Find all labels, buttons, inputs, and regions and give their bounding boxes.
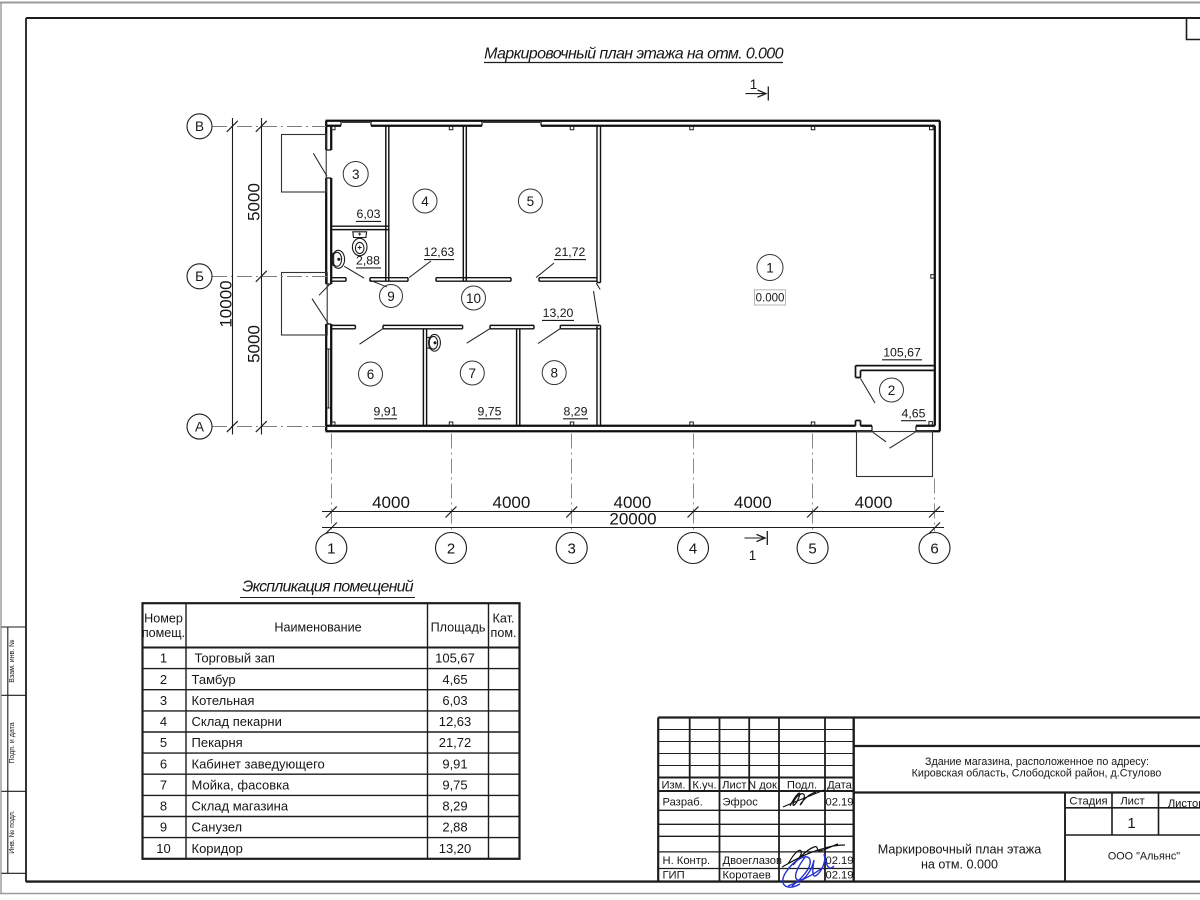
svg-text:4,65: 4,65 <box>902 406 926 420</box>
svg-text:2,88: 2,88 <box>356 254 380 268</box>
svg-text:5000: 5000 <box>244 183 263 221</box>
svg-text:13,20: 13,20 <box>439 841 472 856</box>
svg-text:13,20: 13,20 <box>543 306 574 320</box>
svg-text:Подп. и дата: Подп. и дата <box>9 722 16 763</box>
svg-text:9,91: 9,91 <box>442 756 467 771</box>
svg-text:1: 1 <box>750 77 758 92</box>
svg-text:10: 10 <box>156 841 170 856</box>
svg-text:5: 5 <box>808 541 816 558</box>
svg-text:В: В <box>195 119 204 134</box>
svg-text:0.000: 0.000 <box>756 293 785 305</box>
svg-text:Кат.: Кат. <box>493 612 515 626</box>
svg-text:Маркировочный план этажа на от: Маркировочный план этажа на отм. 0.000 <box>484 46 783 63</box>
svg-text:105,67: 105,67 <box>883 345 921 359</box>
svg-text:2,88: 2,88 <box>442 820 467 835</box>
svg-text:помещ.: помещ. <box>142 626 185 640</box>
svg-text:02.19: 02.19 <box>826 870 854 882</box>
svg-text:4000: 4000 <box>855 493 893 512</box>
svg-text:4000: 4000 <box>492 493 530 512</box>
svg-text:6,03: 6,03 <box>442 693 467 708</box>
svg-text:21,72: 21,72 <box>439 735 472 750</box>
svg-text:9: 9 <box>160 820 167 835</box>
svg-text:Склад магазина: Склад магазина <box>192 799 289 814</box>
svg-text:3: 3 <box>352 167 360 182</box>
svg-text:8,29: 8,29 <box>564 404 588 418</box>
svg-text:6,03: 6,03 <box>357 207 381 221</box>
svg-text:2: 2 <box>888 383 896 398</box>
svg-text:Лист: Лист <box>722 779 746 791</box>
svg-text:Мойка, фасовка: Мойка, фасовка <box>192 778 291 793</box>
svg-text:8: 8 <box>550 365 558 380</box>
svg-text:Дата: Дата <box>827 779 853 791</box>
svg-text:Стадия: Стадия <box>1069 796 1107 808</box>
svg-text:10: 10 <box>466 291 481 306</box>
svg-text:5: 5 <box>527 194 535 209</box>
svg-text:Кировская область, Слободской: Кировская область, Слободской район, д.С… <box>912 768 1162 780</box>
svg-text:Лист: Лист <box>1120 796 1144 808</box>
svg-text:Н. Контр.: Н. Контр. <box>663 855 711 867</box>
svg-text:Коридор: Коридор <box>192 841 243 856</box>
svg-text:9,75: 9,75 <box>442 778 467 793</box>
svg-text:пом.: пом. <box>491 626 517 640</box>
svg-text:Наименование: Наименование <box>274 621 361 635</box>
svg-text:9: 9 <box>387 289 395 304</box>
svg-text:02.19: 02.19 <box>826 797 854 809</box>
svg-text:4,65: 4,65 <box>442 672 467 687</box>
svg-text:Изм.: Изм. <box>662 779 686 791</box>
svg-text:9,75: 9,75 <box>478 404 502 418</box>
svg-text:7: 7 <box>469 366 477 381</box>
svg-text:Номер: Номер <box>144 612 183 626</box>
svg-text:7: 7 <box>160 778 167 793</box>
svg-text:12,63: 12,63 <box>439 714 472 729</box>
svg-text:10000: 10000 <box>216 280 235 327</box>
svg-text:ООО "Альянс": ООО "Альянс" <box>1108 851 1180 863</box>
svg-text:Санузел: Санузел <box>192 820 243 835</box>
svg-text:на отм. 0.000: на отм. 0.000 <box>921 858 998 872</box>
svg-text:Здание магазина, расположенное: Здание магазина, расположенное по адресу… <box>925 756 1149 768</box>
svg-text:ГИП: ГИП <box>663 870 685 882</box>
svg-text:1: 1 <box>1127 815 1135 832</box>
svg-text:Кабинет заведующего: Кабинет заведующего <box>192 756 325 771</box>
svg-text:4: 4 <box>160 714 167 729</box>
svg-text:4: 4 <box>421 194 429 209</box>
svg-text:4: 4 <box>689 541 697 558</box>
svg-text:1: 1 <box>160 651 167 666</box>
svg-text:21,72: 21,72 <box>555 245 586 259</box>
svg-text:5: 5 <box>160 735 167 750</box>
svg-text:N док.: N док. <box>748 779 780 791</box>
svg-text:4000: 4000 <box>734 493 772 512</box>
svg-text:Торговый зап: Торговый зап <box>195 651 275 666</box>
svg-text:Пекарня: Пекарня <box>192 735 243 750</box>
svg-text:2: 2 <box>160 672 167 687</box>
svg-text:4000: 4000 <box>372 493 410 512</box>
svg-text:6: 6 <box>160 756 167 771</box>
svg-text:Двоеглазов: Двоеглазов <box>723 855 783 867</box>
svg-text:12,63: 12,63 <box>424 245 455 259</box>
svg-text:К.уч.: К.уч. <box>692 779 716 791</box>
svg-text:105,67: 105,67 <box>435 651 475 666</box>
svg-text:2: 2 <box>447 541 455 558</box>
svg-text:Котельная: Котельная <box>192 693 255 708</box>
svg-text:02.19: 02.19 <box>826 855 854 867</box>
svg-text:Площадь: Площадь <box>431 621 486 635</box>
svg-text:6: 6 <box>930 541 938 558</box>
svg-text:Склад пекарни: Склад пекарни <box>192 714 282 729</box>
svg-text:Маркировочный план этажа: Маркировочный план этажа <box>878 843 1041 857</box>
svg-text:Эфрос: Эфрос <box>723 797 759 809</box>
svg-text:Инв. № подл.: Инв. № подл. <box>9 810 16 854</box>
svg-text:8: 8 <box>160 799 167 814</box>
svg-text:1: 1 <box>327 541 335 558</box>
svg-text:6: 6 <box>367 367 375 382</box>
svg-text:Тамбур: Тамбур <box>192 672 236 687</box>
svg-text:8,29: 8,29 <box>442 799 467 814</box>
svg-text:Подл.: Подл. <box>787 779 817 791</box>
svg-text:Коротаев: Коротаев <box>723 870 771 882</box>
svg-text:Б: Б <box>195 269 204 284</box>
svg-text:1: 1 <box>749 548 757 563</box>
svg-text:3: 3 <box>568 541 576 558</box>
svg-text:9,91: 9,91 <box>374 404 398 418</box>
svg-text:А: А <box>195 420 204 435</box>
svg-text:Разраб.: Разраб. <box>663 797 703 809</box>
svg-text:Экспликация помещений: Экспликация помещений <box>242 579 413 596</box>
svg-text:Листов: Листов <box>1168 798 1200 810</box>
svg-text:Взам. инв. №: Взам. инв. № <box>9 639 16 682</box>
svg-text:3: 3 <box>160 693 167 708</box>
svg-text:20000: 20000 <box>609 510 656 529</box>
svg-text:1: 1 <box>766 260 774 275</box>
svg-text:5000: 5000 <box>244 325 263 363</box>
